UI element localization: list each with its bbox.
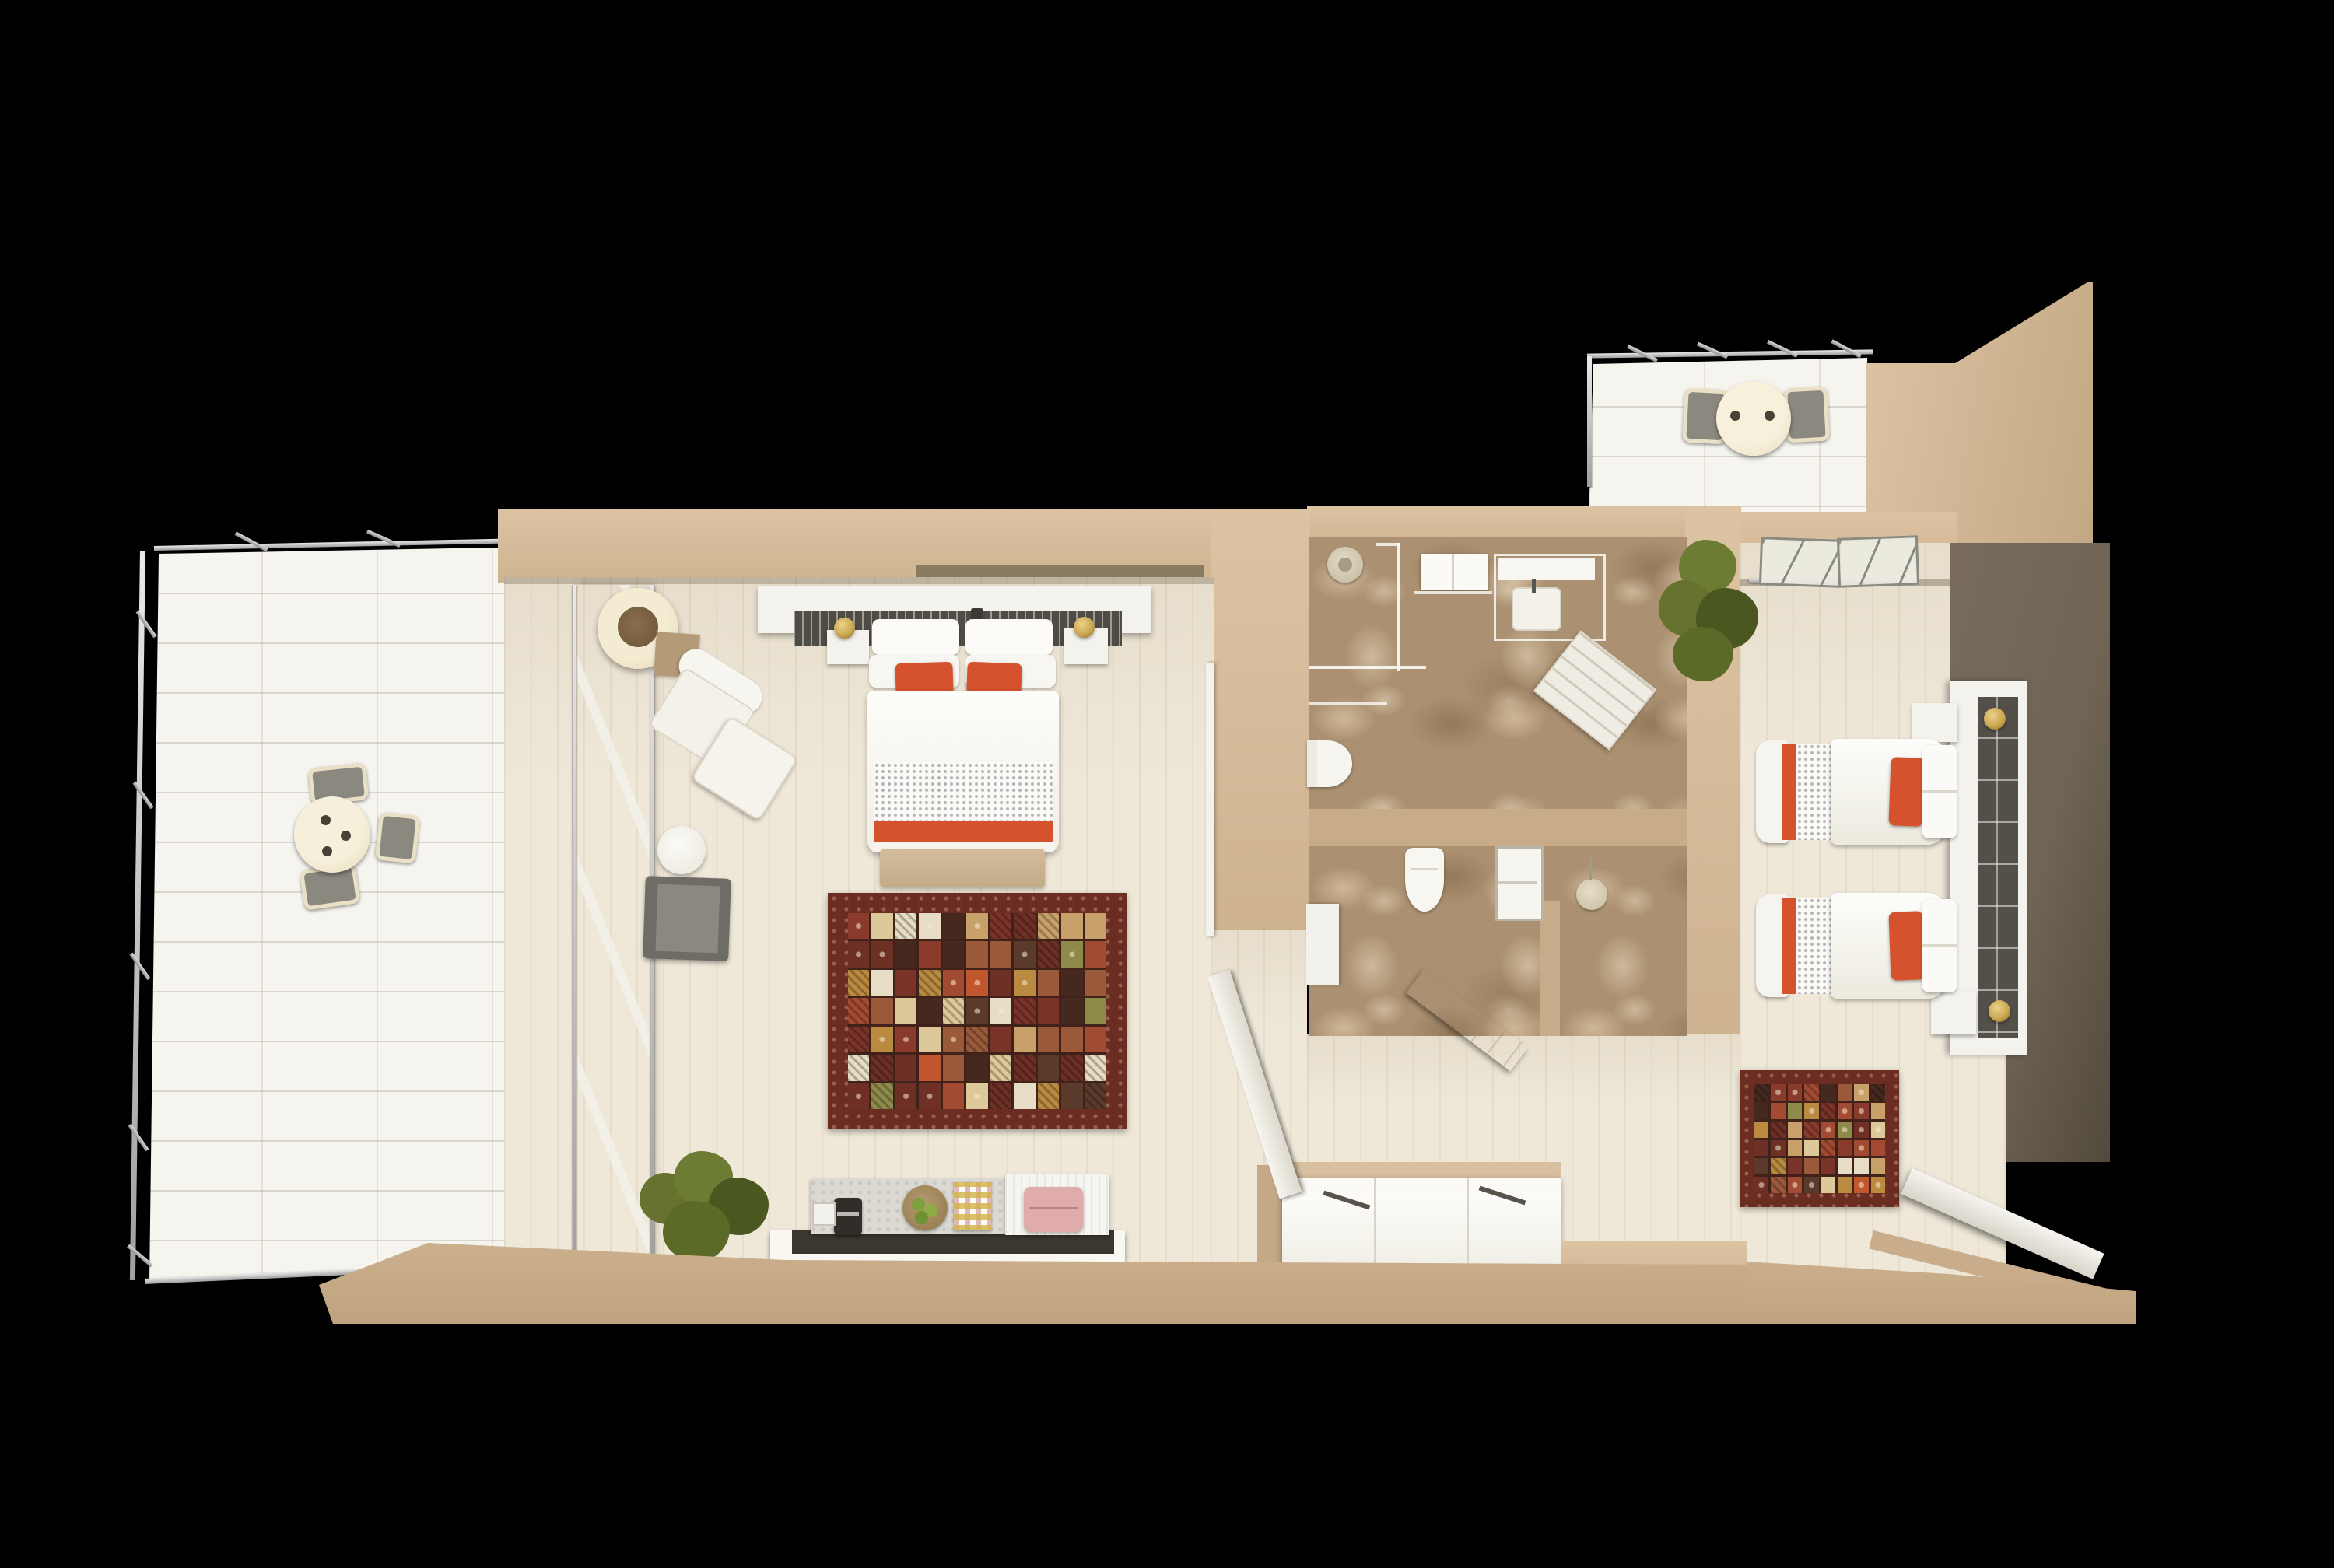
snack-box bbox=[954, 1182, 991, 1230]
table-knot bbox=[1730, 411, 1740, 421]
rug-tile bbox=[1804, 1140, 1818, 1157]
apple bbox=[915, 1211, 928, 1224]
shower-glass-panel bbox=[1376, 543, 1400, 546]
rug-tile bbox=[990, 998, 1011, 1024]
table-knot bbox=[322, 846, 332, 856]
rug-tile bbox=[1014, 998, 1035, 1024]
rug-tile bbox=[1821, 1140, 1835, 1157]
bathroom-door-open bbox=[1306, 904, 1339, 985]
rug-tile bbox=[1871, 1140, 1885, 1157]
bed-bench bbox=[880, 849, 1045, 887]
balcony-railing-top bbox=[1587, 349, 1873, 358]
rug-tile bbox=[1771, 1084, 1785, 1101]
sink-vanity bbox=[1494, 554, 1606, 641]
rug-tile bbox=[1754, 1140, 1768, 1157]
wardrobe-top-wall bbox=[1282, 1162, 1561, 1179]
accent-pillow bbox=[1888, 911, 1925, 980]
nightstand bbox=[1912, 703, 1957, 742]
rug-tile bbox=[943, 941, 964, 967]
rug-tile bbox=[1085, 941, 1106, 967]
shower-arm bbox=[1589, 854, 1592, 880]
table-lamp bbox=[1989, 1000, 2010, 1022]
rug-tile bbox=[1838, 1177, 1852, 1193]
plant bbox=[1656, 537, 1766, 684]
table-knot bbox=[321, 815, 331, 825]
table-lamp bbox=[1984, 708, 2006, 730]
rug-tile bbox=[1788, 1158, 1802, 1174]
rug-tile bbox=[1871, 1177, 1885, 1193]
rug-tile bbox=[1788, 1122, 1802, 1138]
rug-tile bbox=[1754, 1084, 1768, 1101]
rug-tile bbox=[1871, 1158, 1885, 1174]
rug-tile bbox=[1804, 1177, 1818, 1193]
bedroom-divider-wall bbox=[1211, 509, 1310, 933]
window-pane bbox=[1759, 537, 1842, 588]
rug-tile bbox=[966, 1027, 987, 1052]
rug-tile bbox=[1061, 1083, 1082, 1109]
wall-cabinet bbox=[1495, 846, 1544, 921]
rug-tile bbox=[1771, 1103, 1785, 1119]
rug-tile bbox=[1788, 1140, 1802, 1157]
rug-tile bbox=[1771, 1122, 1785, 1138]
table-knot bbox=[1765, 411, 1775, 421]
rug-tile bbox=[1754, 1177, 1768, 1193]
shower-head bbox=[1327, 547, 1363, 583]
rug-tile bbox=[848, 1083, 869, 1109]
rug-tile bbox=[1014, 1055, 1035, 1080]
side-table bbox=[657, 826, 706, 874]
rug-tile bbox=[895, 970, 916, 996]
window-pane bbox=[1837, 535, 1919, 588]
cabinet-shelf-line bbox=[1498, 881, 1537, 884]
pillow bbox=[965, 619, 1053, 655]
rug-tile bbox=[1061, 913, 1082, 939]
rug-tile bbox=[1821, 1103, 1835, 1119]
rug-tile bbox=[990, 941, 1011, 967]
plant-leaf bbox=[1673, 627, 1733, 681]
rug-tile bbox=[1038, 1027, 1059, 1052]
terrace-chair-cushion bbox=[375, 811, 420, 863]
rug-tile bbox=[919, 1055, 940, 1080]
rug-tile bbox=[1854, 1084, 1868, 1101]
rug-tile bbox=[1014, 1027, 1035, 1052]
rug-tile bbox=[1821, 1122, 1835, 1138]
rug-tile bbox=[848, 1027, 869, 1052]
accent-runner bbox=[1782, 744, 1796, 840]
faucet bbox=[1532, 579, 1536, 593]
suitcase bbox=[1024, 1187, 1083, 1232]
rug-tile bbox=[919, 970, 940, 996]
rug-tile bbox=[1854, 1103, 1868, 1119]
rug-tile bbox=[1871, 1103, 1885, 1119]
rug-tile bbox=[1061, 1027, 1082, 1052]
rug-tile bbox=[1854, 1177, 1868, 1193]
glass-partition bbox=[1309, 702, 1387, 705]
twin-bed bbox=[1756, 737, 1963, 846]
rug-tile bbox=[943, 913, 964, 939]
rug-tile bbox=[966, 998, 987, 1024]
rug-tile bbox=[919, 913, 940, 939]
rug-tile bbox=[1085, 1055, 1106, 1080]
table-knot bbox=[341, 831, 351, 841]
rug-tile bbox=[1061, 941, 1082, 967]
rug-tile bbox=[1014, 913, 1035, 939]
rug-tile bbox=[919, 1083, 940, 1109]
accent-runner bbox=[874, 821, 1053, 842]
terrace-railing-left bbox=[130, 551, 145, 1280]
toilet-tank bbox=[1307, 740, 1317, 787]
rug-tile bbox=[871, 998, 892, 1024]
rug-tile bbox=[1038, 1055, 1059, 1080]
pillow-split bbox=[1922, 944, 1957, 947]
rug-tile bbox=[848, 913, 869, 939]
rug-tile bbox=[943, 998, 964, 1024]
rug-tile bbox=[943, 1083, 964, 1109]
rug-tile bbox=[943, 970, 964, 996]
railing-brace bbox=[1831, 339, 1861, 358]
rug-tile bbox=[1061, 1055, 1082, 1080]
area-rug bbox=[828, 893, 1127, 1129]
rug-tile bbox=[919, 998, 940, 1024]
table-lamp bbox=[834, 618, 855, 639]
rug-tile bbox=[1771, 1177, 1785, 1193]
rug-tile bbox=[966, 1055, 987, 1080]
twin-bed bbox=[1756, 891, 1963, 1000]
rug-tile bbox=[1038, 998, 1059, 1024]
coffee-machine-band bbox=[837, 1212, 859, 1216]
rug-tile bbox=[1061, 970, 1082, 996]
pocket-door-edge bbox=[1206, 663, 1214, 936]
rug-tile bbox=[1085, 1027, 1106, 1052]
rug-tile bbox=[990, 913, 1011, 939]
towel-rail bbox=[1414, 591, 1492, 594]
balcony-railing-left bbox=[1587, 356, 1592, 487]
rug-tile bbox=[1821, 1177, 1835, 1193]
vanity-counter bbox=[1498, 558, 1595, 580]
towel-split bbox=[1452, 554, 1454, 590]
rug-tile bbox=[848, 998, 869, 1024]
rug-tile bbox=[1038, 941, 1059, 967]
table-lamp bbox=[1074, 617, 1095, 638]
coffee-machine bbox=[834, 1198, 862, 1235]
rug-tile bbox=[1038, 1083, 1059, 1109]
rug-tile bbox=[1771, 1158, 1785, 1174]
rug-tile bbox=[1771, 1140, 1785, 1157]
rug-tile bbox=[1014, 1083, 1035, 1109]
rug-tile bbox=[1754, 1158, 1768, 1174]
apple bbox=[912, 1198, 925, 1211]
rug-tile bbox=[943, 1027, 964, 1052]
pillow-split bbox=[1922, 790, 1957, 793]
area-rug-small bbox=[1740, 1070, 1899, 1207]
balcony-table bbox=[1716, 381, 1791, 456]
sink-basin bbox=[1512, 587, 1561, 631]
bathroom-divider bbox=[1309, 809, 1687, 848]
rug-tile bbox=[990, 1055, 1011, 1080]
rug-tile bbox=[1788, 1084, 1802, 1101]
pillow bbox=[872, 619, 959, 655]
accent-runner bbox=[1782, 898, 1796, 994]
rug-tile bbox=[990, 970, 1011, 996]
rug-tile bbox=[871, 970, 892, 996]
rug-tile bbox=[1838, 1158, 1852, 1174]
rug-tile bbox=[1754, 1103, 1768, 1119]
shower-glass-panel bbox=[1397, 543, 1400, 671]
rug-tile bbox=[1821, 1158, 1835, 1174]
rug-tile bbox=[990, 1027, 1011, 1052]
sliding-door-track bbox=[573, 585, 576, 1276]
media-console bbox=[770, 1167, 1125, 1269]
shower-head bbox=[1576, 879, 1607, 910]
rug-tile bbox=[1838, 1140, 1852, 1157]
rug-tile bbox=[1085, 970, 1106, 996]
accent-pillow bbox=[1888, 757, 1925, 826]
rug-tile bbox=[1804, 1084, 1818, 1101]
rug-tile bbox=[895, 1027, 916, 1052]
patterned-throw bbox=[1796, 744, 1832, 840]
rug-tile bbox=[1804, 1103, 1818, 1119]
toilet bbox=[1405, 848, 1444, 912]
rug-tile bbox=[895, 1083, 916, 1109]
rug-tile bbox=[1838, 1103, 1852, 1119]
shower-head-center bbox=[1338, 558, 1352, 572]
rug-tile bbox=[848, 1055, 869, 1080]
rug-tile bbox=[1788, 1177, 1802, 1193]
double-bed bbox=[867, 618, 1059, 852]
rug-tile bbox=[919, 1027, 940, 1052]
pillow bbox=[1922, 899, 1957, 992]
top-wall-floor-shadow bbox=[504, 577, 1214, 584]
rug-tile bbox=[990, 1083, 1011, 1109]
rug-tile bbox=[871, 1055, 892, 1080]
glass-partition bbox=[1309, 666, 1426, 669]
rug-tile bbox=[1014, 941, 1035, 967]
rug-tile bbox=[1085, 913, 1106, 939]
armchair bbox=[643, 876, 731, 961]
rug-tile bbox=[1804, 1122, 1818, 1138]
rug-tile bbox=[966, 1083, 987, 1109]
rug-tile bbox=[848, 970, 869, 996]
rug-tile bbox=[1821, 1084, 1835, 1101]
plant bbox=[636, 1150, 775, 1268]
rug-tile bbox=[966, 941, 987, 967]
rug-tile bbox=[1061, 998, 1082, 1024]
floorplan-stage bbox=[0, 0, 2334, 1568]
rug-tile bbox=[1854, 1158, 1868, 1174]
kettle bbox=[812, 1202, 836, 1226]
fruit-tray bbox=[902, 1185, 948, 1230]
rug-tile bbox=[848, 941, 869, 967]
rug-tile bbox=[895, 1055, 916, 1080]
shower-room bbox=[1560, 846, 1687, 1036]
rug-tile bbox=[1871, 1084, 1885, 1101]
rug-tile bbox=[966, 913, 987, 939]
terrace-table bbox=[294, 796, 370, 873]
armchair-seat bbox=[656, 884, 720, 954]
rug-tile bbox=[1854, 1122, 1868, 1138]
towel-stack bbox=[1421, 554, 1488, 590]
rug-tile bbox=[871, 1083, 892, 1109]
rug-tile bbox=[895, 941, 916, 967]
rug-tile bbox=[1014, 970, 1035, 996]
rug-tile bbox=[919, 941, 940, 967]
twin-headboard-runner bbox=[1978, 697, 2018, 1038]
rug-tile bbox=[1804, 1158, 1818, 1174]
rug-tile bbox=[871, 913, 892, 939]
rug-tile bbox=[1754, 1122, 1768, 1138]
terrace-chair bbox=[375, 811, 420, 863]
rug-tile bbox=[1871, 1122, 1885, 1138]
rug-tile bbox=[943, 1055, 964, 1080]
patterned-throw bbox=[874, 762, 1053, 821]
rug-tile bbox=[895, 913, 916, 939]
toilet-seat-line bbox=[1411, 868, 1438, 870]
patterned-throw bbox=[1796, 898, 1832, 994]
rug-tile bbox=[1838, 1084, 1852, 1101]
suitcase-seam bbox=[1029, 1207, 1078, 1209]
rug-tile bbox=[966, 970, 987, 996]
rug-tile bbox=[871, 941, 892, 967]
plant-leaf bbox=[663, 1201, 730, 1262]
rug-tile bbox=[1788, 1103, 1802, 1119]
rug-tile bbox=[1038, 913, 1059, 939]
rug-tile bbox=[1038, 970, 1059, 996]
shower-divider bbox=[1540, 901, 1560, 1036]
rug-tile bbox=[1838, 1122, 1852, 1138]
rug-tile bbox=[1854, 1140, 1868, 1157]
rug-tile bbox=[1085, 1083, 1106, 1109]
lamp-opening bbox=[618, 607, 658, 647]
rug-tile bbox=[895, 998, 916, 1024]
pillow bbox=[1922, 745, 1957, 838]
rug-tile bbox=[1085, 998, 1106, 1024]
rug-tile bbox=[871, 1027, 892, 1052]
